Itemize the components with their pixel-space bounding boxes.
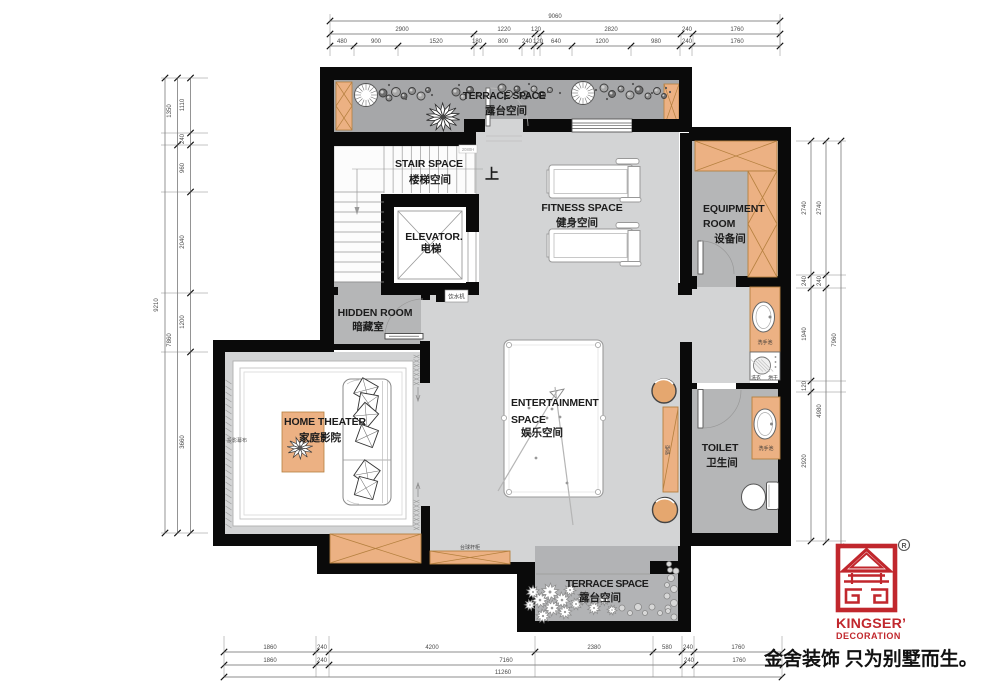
svg-text:1940: 1940: [802, 327, 808, 341]
svg-text:11260: 11260: [495, 670, 512, 676]
svg-text:480: 480: [337, 39, 348, 45]
svg-text:1220: 1220: [497, 27, 511, 33]
svg-text:240: 240: [317, 645, 328, 651]
svg-text:240: 240: [817, 275, 823, 286]
svg-text:饮水机: 饮水机: [448, 293, 465, 301]
svg-text:120: 120: [802, 380, 808, 391]
svg-text:120: 120: [531, 27, 542, 33]
svg-text:240: 240: [684, 658, 695, 664]
svg-text:2080H: 2080H: [462, 147, 474, 152]
svg-text:580: 580: [662, 645, 673, 651]
svg-text:电梯: 电梯: [421, 242, 442, 255]
svg-text:4980: 4980: [817, 404, 823, 418]
svg-text:9210: 9210: [154, 298, 160, 312]
svg-text:ENTERTAINMENT: ENTERTAINMENT: [511, 397, 599, 409]
svg-text:1860: 1860: [263, 645, 277, 651]
svg-text:TOILET: TOILET: [702, 442, 739, 454]
svg-text:960: 960: [180, 162, 186, 173]
svg-text:980: 980: [651, 39, 662, 45]
svg-text:HOME THEATER: HOME THEATER: [284, 416, 367, 428]
svg-text:设备间: 设备间: [714, 232, 746, 245]
svg-text:800: 800: [498, 39, 509, 45]
svg-text:SPACE: SPACE: [511, 414, 546, 426]
svg-text:7860: 7860: [167, 333, 173, 347]
svg-text:120: 120: [533, 39, 544, 45]
svg-text:1520: 1520: [429, 39, 443, 45]
svg-text:2740: 2740: [802, 201, 808, 215]
svg-text:240: 240: [683, 645, 694, 651]
svg-text:9060: 9060: [548, 14, 562, 20]
svg-text:ROOM: ROOM: [703, 218, 736, 230]
svg-text:R: R: [901, 543, 906, 550]
svg-text:240: 240: [317, 658, 328, 664]
svg-text:1200: 1200: [180, 315, 186, 329]
svg-text:上: 上: [485, 166, 499, 182]
svg-text:KINGSER’: KINGSER’: [836, 616, 906, 632]
svg-text:2380: 2380: [587, 645, 601, 651]
svg-text:洗手池: 洗手池: [758, 445, 773, 452]
svg-text:FITNESS SPACE: FITNESS SPACE: [541, 202, 622, 214]
svg-text:娱乐空间: 娱乐空间: [521, 426, 563, 439]
svg-text:1110: 1110: [180, 98, 186, 111]
svg-text:台球杆柜: 台球杆柜: [460, 544, 480, 551]
svg-text:洗衣: 洗衣: [751, 374, 761, 381]
svg-text:2900: 2900: [395, 27, 409, 33]
svg-text:ELEVATOR.: ELEVATOR.: [405, 231, 463, 243]
svg-text:卫生间: 卫生间: [706, 456, 738, 469]
svg-text:金舍装饰 只为别墅而生。: 金舍装饰 只为别墅而生。: [763, 647, 978, 670]
svg-text:烘干: 烘干: [768, 374, 778, 381]
svg-text:240: 240: [682, 39, 693, 45]
svg-text:1200: 1200: [595, 39, 609, 45]
svg-text:露台空间: 露台空间: [485, 104, 527, 117]
svg-text:2740: 2740: [817, 201, 823, 215]
svg-text:暗藏室: 暗藏室: [352, 320, 384, 333]
svg-text:3660: 3660: [180, 435, 186, 449]
svg-text:TERRACE SPACE: TERRACE SPACE: [566, 578, 649, 590]
svg-text:洗手池: 洗手池: [757, 339, 772, 346]
svg-text:1760: 1760: [730, 27, 744, 33]
svg-text:锁柜: 锁柜: [665, 445, 672, 455]
svg-text:7160: 7160: [499, 658, 513, 664]
svg-text:240: 240: [180, 133, 186, 144]
svg-text:健身空间: 健身空间: [556, 216, 598, 229]
svg-text:2920: 2920: [802, 454, 808, 468]
svg-text:DECORATION: DECORATION: [836, 631, 901, 641]
svg-text:1350: 1350: [167, 104, 173, 118]
svg-text:投影幕布: 投影幕布: [227, 437, 247, 444]
svg-text:STAIR SPACE: STAIR SPACE: [395, 158, 463, 170]
svg-text:EQUIPMENT: EQUIPMENT: [703, 203, 765, 215]
svg-text:240: 240: [522, 39, 533, 45]
svg-text:2040: 2040: [180, 235, 186, 249]
svg-text:240: 240: [802, 275, 808, 286]
svg-text:楼梯空间: 楼梯空间: [409, 173, 451, 186]
svg-text:HIDDEN ROOM: HIDDEN ROOM: [338, 307, 413, 319]
svg-text:2820: 2820: [604, 27, 618, 33]
svg-text:4200: 4200: [425, 645, 439, 651]
svg-text:7960: 7960: [832, 333, 838, 347]
svg-text:家庭影院: 家庭影院: [299, 431, 341, 444]
svg-text:900: 900: [371, 39, 382, 45]
svg-text:1760: 1760: [730, 39, 744, 45]
svg-text:TERRACE SPACE: TERRACE SPACE: [463, 90, 546, 102]
svg-text:180: 180: [472, 39, 483, 45]
svg-text:1760: 1760: [731, 645, 745, 651]
svg-text:640: 640: [551, 39, 562, 45]
svg-text:露台空间: 露台空间: [579, 591, 621, 604]
svg-text:1860: 1860: [263, 658, 277, 664]
svg-text:240: 240: [682, 27, 693, 33]
svg-text:1760: 1760: [732, 658, 746, 664]
